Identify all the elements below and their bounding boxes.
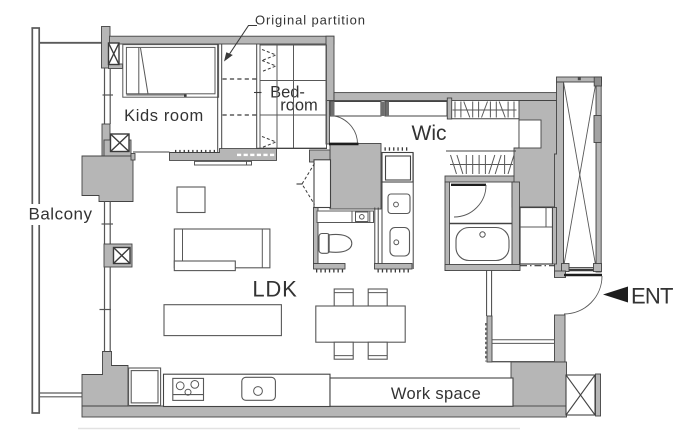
svg-text:Original partition: Original partition	[255, 13, 366, 28]
svg-text:LDK: LDK	[252, 277, 297, 302]
svg-text:ENT: ENT	[631, 284, 673, 309]
svg-text:Work space: Work space	[391, 385, 481, 403]
svg-text:Wic: Wic	[412, 122, 447, 145]
svg-text:Balcony: Balcony	[29, 205, 93, 224]
svg-text:room: room	[280, 97, 318, 115]
svg-text:Kids room: Kids room	[124, 107, 204, 125]
